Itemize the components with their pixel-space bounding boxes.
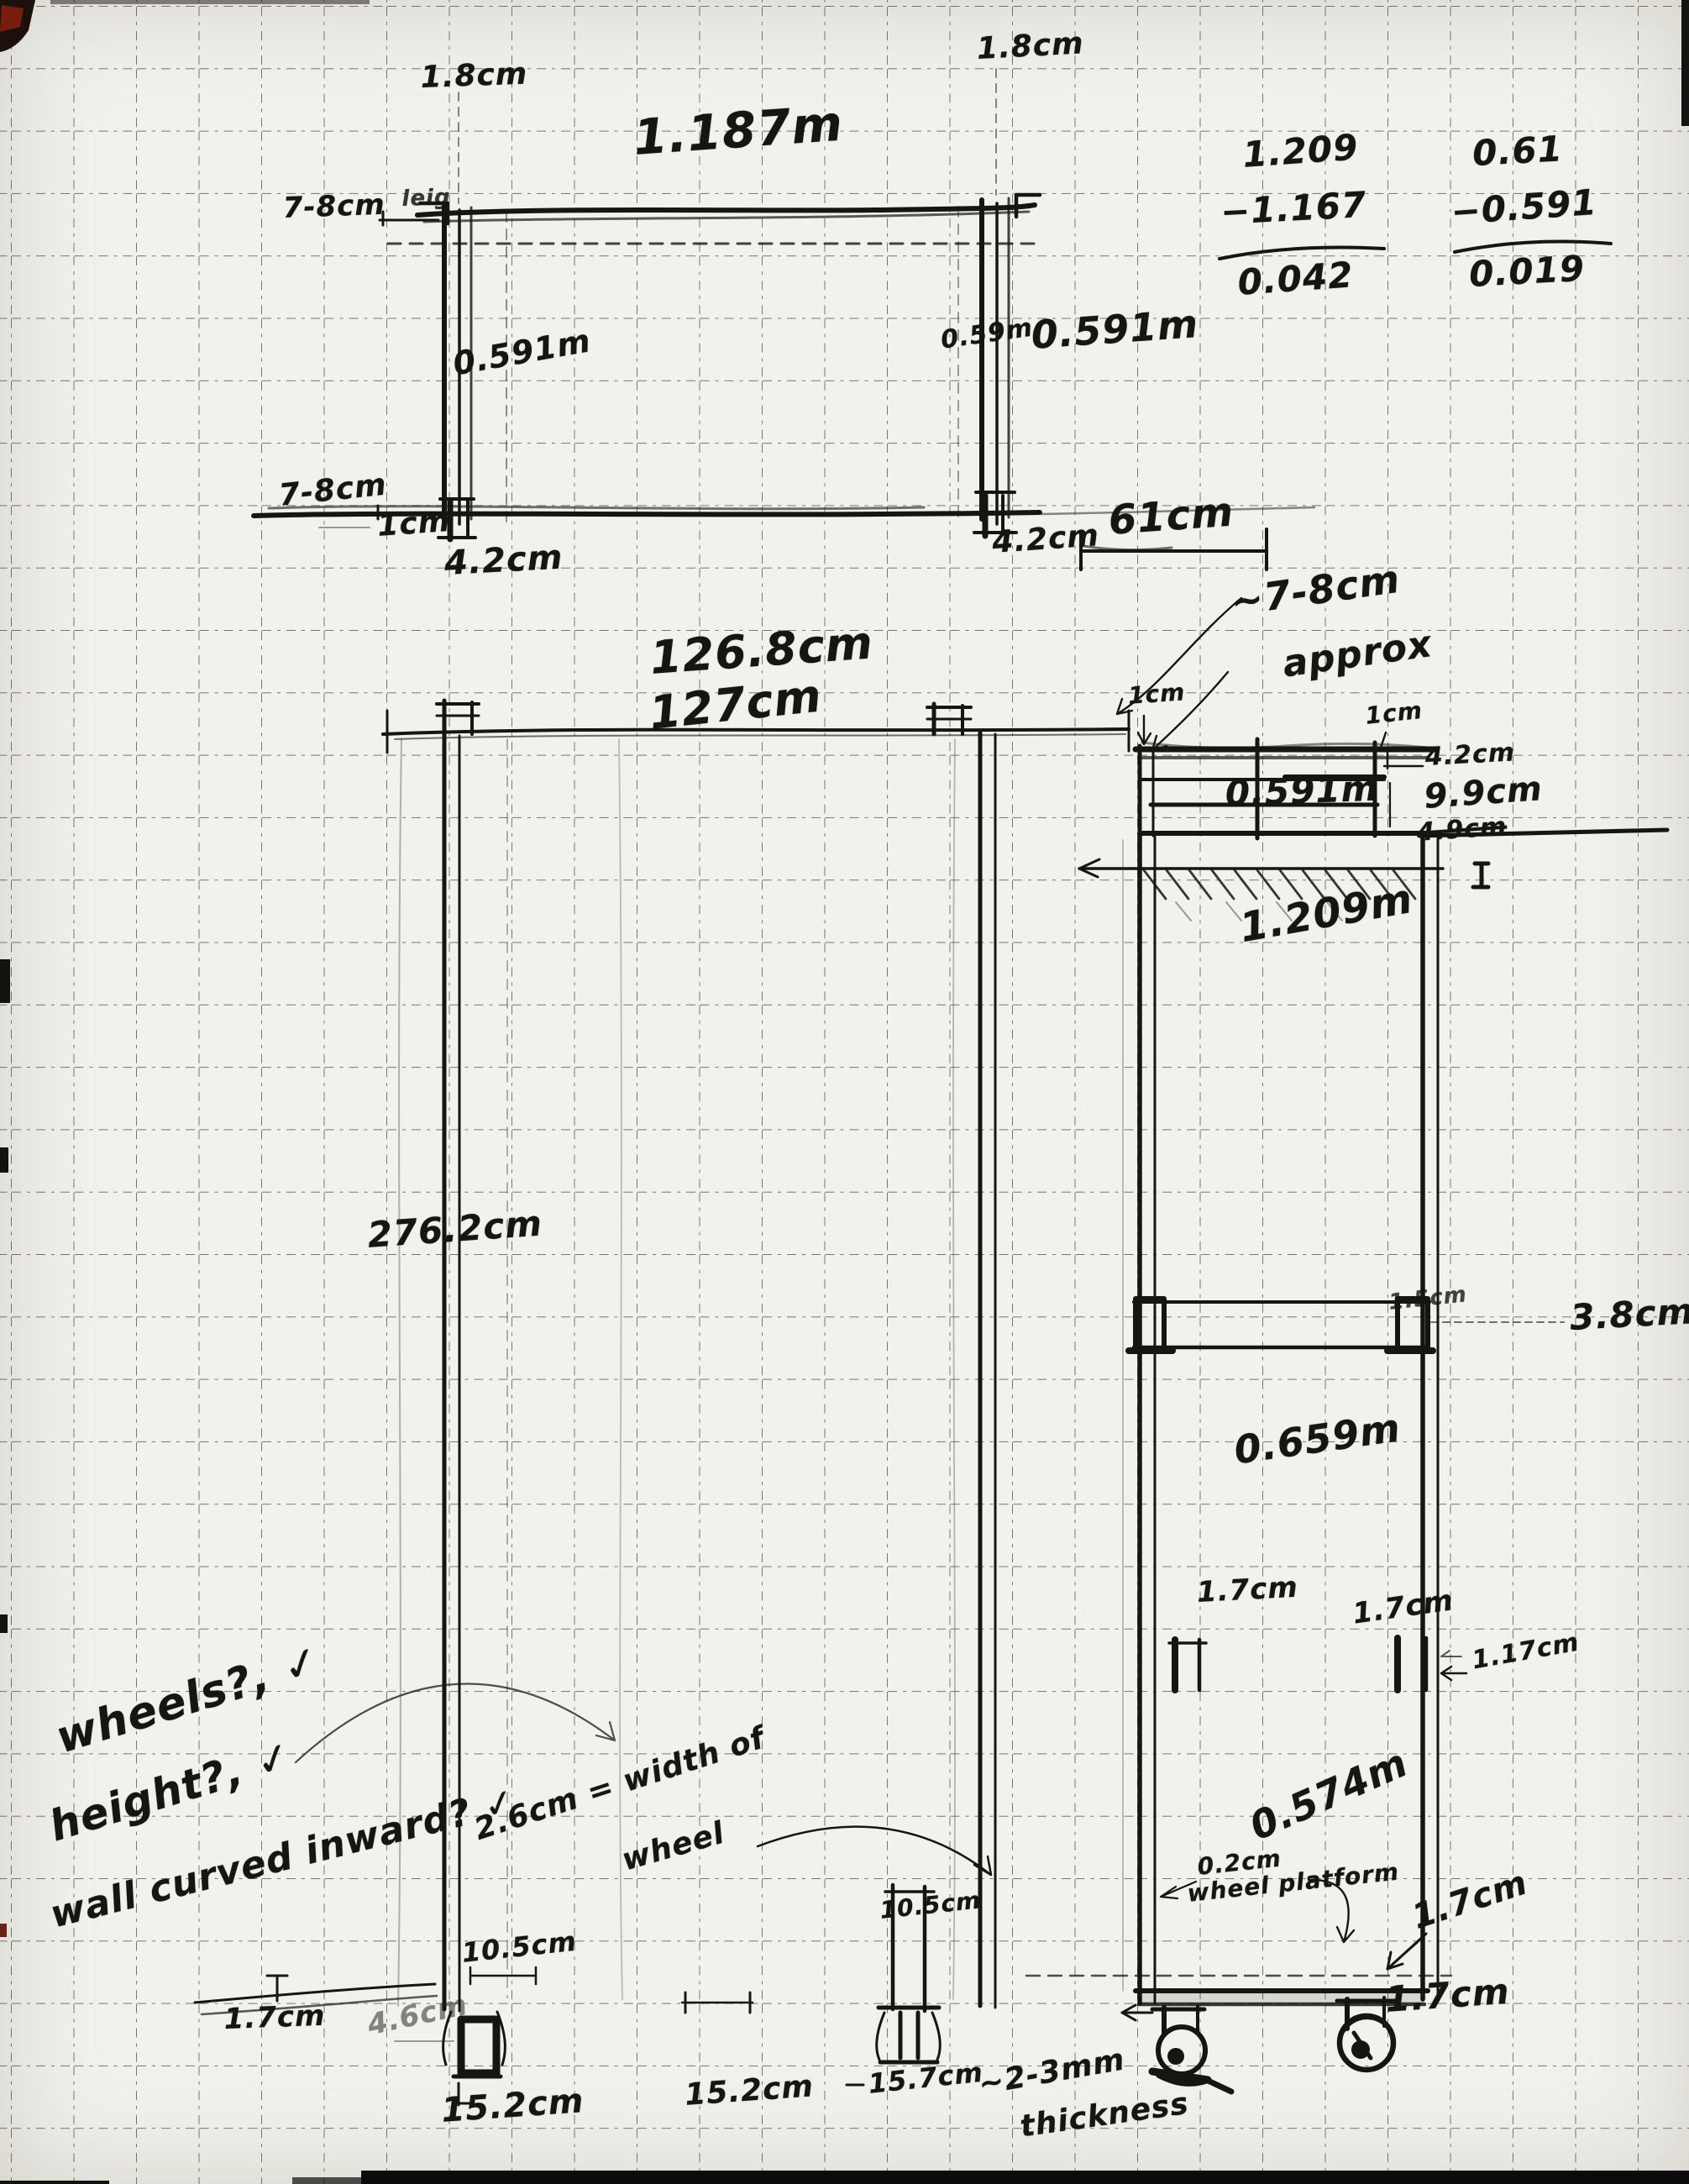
leg-top-scribble: leig: [401, 185, 451, 212]
dim-top-wall-right-label: 1.8cm: [976, 26, 1085, 66]
dim-platform-height-label: 1.7cm: [1384, 1971, 1511, 2020]
dim-offset-bottom-label: 1cm: [376, 504, 452, 543]
dim-top-wall-left-label: 1.8cm: [420, 57, 528, 95]
calc2-result: 0.019: [1468, 248, 1586, 295]
dim-box-width-label: 0.591m: [1225, 768, 1379, 814]
calc1-subtrahend: −1.167: [1220, 184, 1367, 233]
dim-leg-top-label: 7-8cm: [282, 188, 386, 225]
dim-side-top-width-label: 61cm: [1107, 489, 1235, 544]
dim-box-height-label: 9.9cm: [1423, 769, 1544, 816]
dim-foot-left-side-label: 1.7cm: [223, 1999, 326, 2036]
calc2-minuend: 0.61: [1471, 128, 1564, 174]
dim-corner-left-label: 1cm: [1127, 678, 1186, 710]
dim-foot-left-label: 4.2cm: [443, 538, 564, 583]
dim-tube-left-label: 1.7cm: [1196, 1571, 1299, 1609]
dim-box-height-struck-label: 4.9cm: [1416, 812, 1508, 848]
dim-box-wall-label: 4.2cm: [1424, 738, 1516, 772]
calc1-result: 0.042: [1236, 254, 1355, 302]
calc1-minuend: 1.209: [1241, 126, 1360, 175]
dim-brace-height-label: 3.8cm: [1569, 1290, 1689, 1338]
graph-paper-sketch: 1.8cm 1.8cm 1.187m 7-8cm leig 0.591m 0.5…: [0, 0, 1689, 2184]
